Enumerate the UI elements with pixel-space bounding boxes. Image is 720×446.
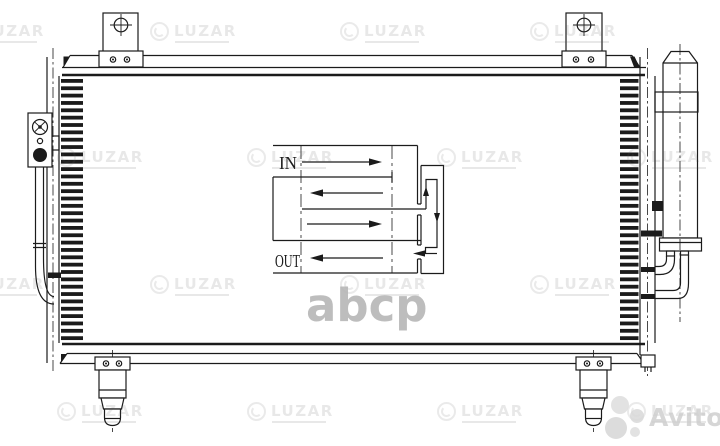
- fin-tooth: [61, 86, 83, 90]
- fin-tooth: [620, 241, 639, 245]
- fin-tooth: [61, 233, 83, 237]
- fin-tooth: [620, 285, 639, 289]
- bottom-mount-pin-right: [576, 350, 611, 432]
- fin-tooth: [61, 292, 83, 296]
- fin-tooth: [620, 314, 639, 318]
- fin-tooth: [620, 329, 639, 333]
- fin-tooth: [620, 300, 639, 304]
- fin-tooth: [620, 145, 639, 149]
- fin-tooth: [620, 292, 639, 296]
- inlet-fitting-block: [28, 113, 59, 167]
- fin-tooth: [620, 153, 639, 157]
- fin-tooth: [61, 182, 83, 186]
- fin-tooth: [61, 145, 83, 149]
- fin-tooth: [620, 233, 639, 237]
- fin-tooth: [61, 108, 83, 112]
- fin-tooth: [620, 160, 639, 164]
- fin-tooth: [620, 108, 639, 112]
- fin-tooth: [61, 123, 83, 127]
- fin-tooth: [620, 322, 639, 326]
- fin-tooth: [61, 189, 83, 193]
- fin-tooth: [620, 307, 639, 311]
- fin-tooth: [620, 79, 639, 83]
- fin-tooth: [620, 175, 639, 179]
- left-fin-strip: [61, 79, 83, 340]
- fin-tooth: [620, 182, 639, 186]
- fin-tooth: [61, 314, 83, 318]
- left-side-plate: [47, 48, 61, 371]
- fin-tooth: [620, 94, 639, 98]
- flow-arrows: [302, 158, 383, 261]
- fin-tooth: [61, 101, 83, 105]
- fin-tooth: [61, 219, 83, 223]
- fin-tooth: [61, 336, 83, 340]
- fin-tooth: [61, 226, 83, 230]
- fin-tooth: [61, 94, 83, 98]
- fin-tooth: [61, 211, 83, 215]
- fin-tooth: [620, 130, 639, 134]
- fin-tooth: [620, 123, 639, 127]
- receiver-outlet-pipes: [655, 255, 689, 299]
- fin-tooth: [61, 329, 83, 333]
- fin-tooth: [61, 248, 83, 252]
- fin-tooth: [620, 255, 639, 259]
- fin-tooth: [61, 322, 83, 326]
- flow-diagram: IN OUT: [273, 146, 444, 274]
- fin-tooth: [61, 255, 83, 259]
- in-label: IN: [279, 153, 297, 173]
- top-bracket-right: [562, 13, 606, 67]
- fin-tooth: [620, 101, 639, 105]
- fin-tooth: [61, 175, 83, 179]
- fin-tooth: [620, 197, 639, 201]
- fin-tooth: [61, 130, 83, 134]
- inlet-pipe: [33, 167, 54, 304]
- fin-tooth: [620, 86, 639, 90]
- fin-tooth: [620, 138, 639, 142]
- fin-tooth: [620, 263, 639, 267]
- fin-tooth: [620, 248, 639, 252]
- fin-tooth: [61, 153, 83, 157]
- fin-tooth: [61, 241, 83, 245]
- fin-tooth: [620, 189, 639, 193]
- fin-tooth: [61, 263, 83, 267]
- out-label: OUT: [275, 251, 300, 271]
- right-fin-strip: [620, 79, 639, 340]
- fin-tooth: [61, 79, 83, 83]
- fin-tooth: [61, 204, 83, 208]
- fin-tooth: [61, 160, 83, 164]
- fin-tooth: [61, 270, 83, 274]
- fin-tooth: [61, 116, 83, 120]
- fin-tooth: [620, 167, 639, 171]
- receiver-drier: [655, 44, 702, 322]
- condenser-technical-drawing: IN OUT: [0, 0, 720, 446]
- fin-tooth: [620, 277, 639, 281]
- right-side-plate: [640, 48, 663, 376]
- fin-tooth: [61, 138, 83, 142]
- fin-tooth: [61, 197, 83, 201]
- fin-tooth: [61, 277, 83, 281]
- fin-tooth: [61, 307, 83, 311]
- fin-tooth: [620, 211, 639, 215]
- bottom-mount-pin-left: [95, 350, 130, 432]
- fin-tooth: [620, 270, 639, 274]
- fin-tooth: [620, 336, 639, 340]
- fin-tooth: [61, 285, 83, 289]
- fin-tooth: [61, 300, 83, 304]
- bottom-tank-bar: [60, 344, 647, 364]
- top-bracket-left: [99, 13, 143, 67]
- condenser-product-image: LUZARLUZARLUZARLUZARLUZARLUZARLUZARLUZAR…: [0, 0, 720, 446]
- fin-tooth: [620, 204, 639, 208]
- fin-tooth: [61, 167, 83, 171]
- fin-tooth: [620, 226, 639, 230]
- top-tank-bar: [62, 56, 646, 76]
- fin-tooth: [620, 116, 639, 120]
- fin-tooth: [620, 219, 639, 223]
